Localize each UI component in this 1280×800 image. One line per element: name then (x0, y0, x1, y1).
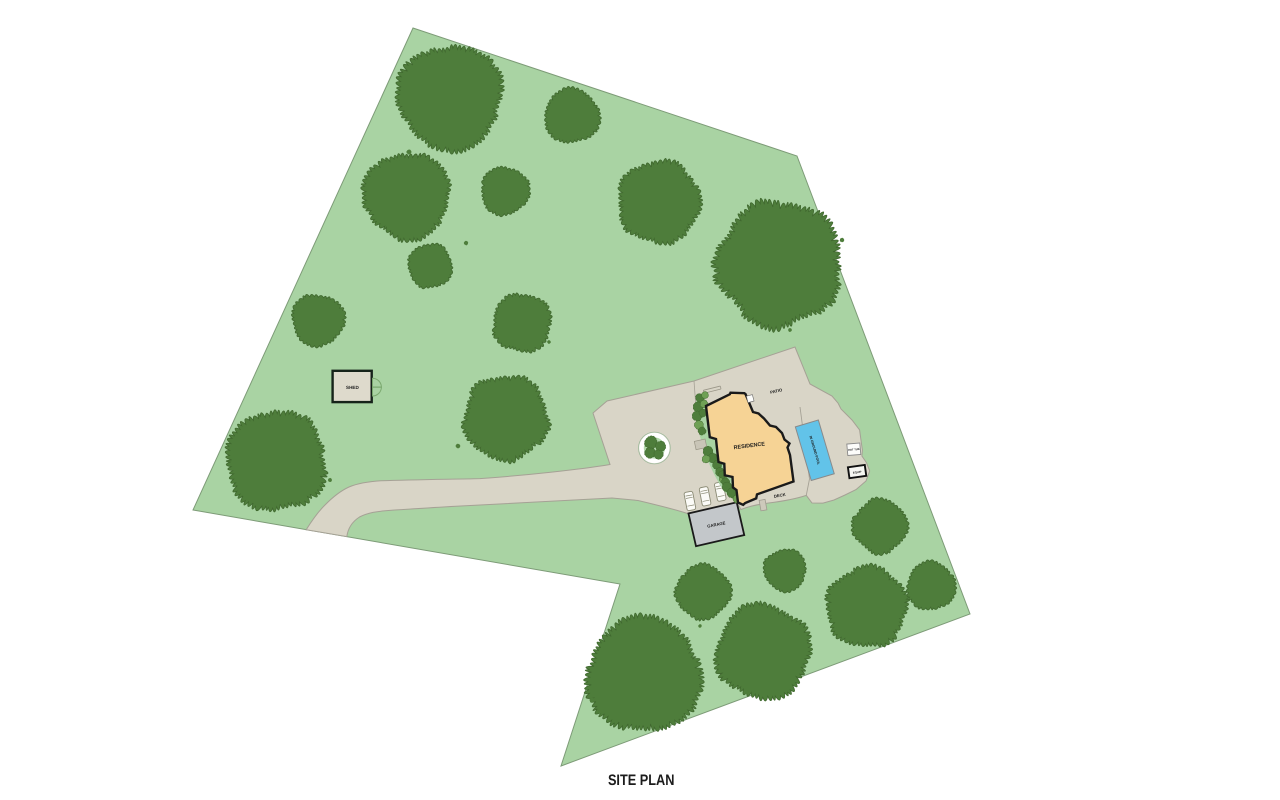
svg-text:SITE PLAN: SITE PLAN (608, 772, 675, 789)
svg-text:SHED: SHED (346, 385, 359, 390)
